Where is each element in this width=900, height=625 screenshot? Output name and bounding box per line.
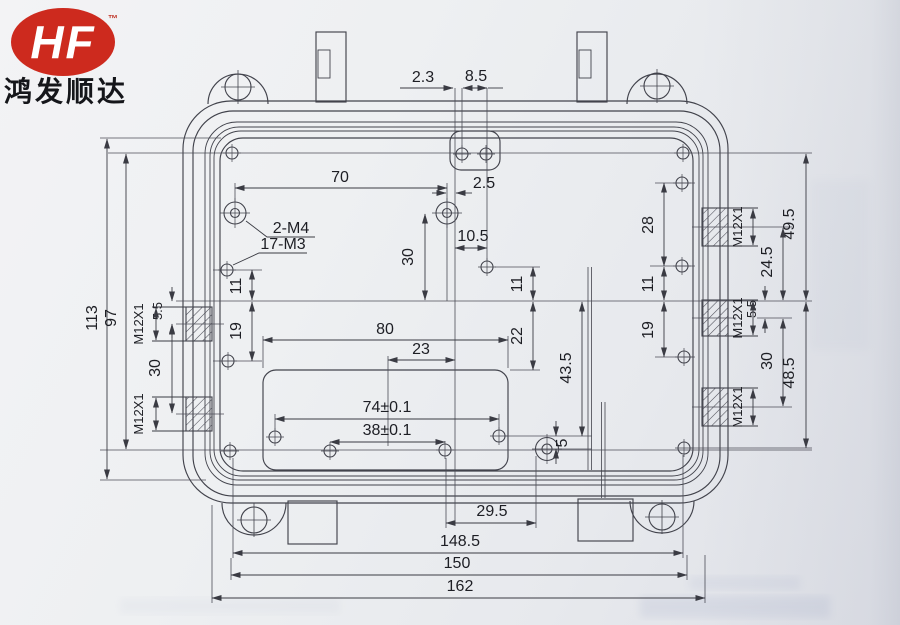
dim-2-3: 2.3 [412, 69, 434, 86]
m4-hole [220, 198, 462, 228]
dim-5-5-left: 5.5 [150, 302, 165, 320]
outer-wall-outline [183, 101, 728, 503]
logo-trademark: ™ [108, 14, 118, 25]
dim-11-center: 11 [509, 276, 526, 293]
dim-11-left: 11 [228, 278, 245, 295]
scanned-drawing-page: HF ™ 鸿发顺达 [0, 0, 900, 625]
dim-113: 113 [84, 305, 101, 331]
label-m12x1-right-middle: M12X1 [730, 297, 745, 338]
label-m12x1-left-lower: M12X1 [131, 393, 146, 434]
dim-70: 70 [331, 169, 349, 186]
dim-5-5-right: 5.5 [744, 300, 759, 318]
hinge-tab-notch [318, 50, 330, 78]
label-2-m4: 2-M4 [273, 220, 310, 237]
dim-19-left: 19 [228, 322, 245, 340]
latch-tab-bottom-right [578, 499, 633, 541]
dim-5: 5 [554, 438, 571, 447]
seal-groove-inner [214, 131, 699, 476]
dim-19-right: 19 [640, 321, 657, 339]
brand-logo: HF ™ 鸿发顺达 [4, 8, 128, 107]
enclosure-drawing: HF ™ 鸿发顺达 [0, 0, 900, 625]
drill-holes [218, 69, 693, 537]
dim-30-center: 30 [400, 248, 417, 266]
dim-24-5: 24.5 [759, 246, 776, 277]
dim-29-5: 29.5 [476, 503, 507, 520]
dim-2-5: 2.5 [473, 175, 495, 192]
scan-artifacts [120, 0, 900, 625]
dim-49-5: 49.5 [781, 208, 798, 239]
dim-8-5: 8.5 [465, 68, 487, 85]
dim-150: 150 [444, 555, 471, 572]
dim-43-5: 43.5 [558, 352, 575, 383]
latch-tab-bottom-left [288, 501, 337, 544]
dim-162: 162 [447, 578, 474, 595]
dim-74: 74±0.1 [363, 399, 412, 416]
label-m12x1-right-lower: M12X1 [730, 386, 745, 427]
logo-company-name: 鸿发顺达 [4, 75, 128, 107]
hinge-tab-notch [579, 50, 591, 78]
dim-30-right: 30 [759, 352, 776, 370]
dim-11-right: 11 [640, 276, 657, 293]
cover-screw-boss [532, 434, 562, 464]
dim-10-5: 10.5 [457, 228, 488, 245]
gland-centerlines [176, 227, 736, 414]
label-17-m3: 17-M3 [260, 236, 305, 253]
label-m12x1-left-upper: M12X1 [131, 303, 146, 344]
dim-30-left: 30 [147, 359, 164, 377]
dim-23: 23 [412, 341, 430, 358]
seal-groove-mid [210, 127, 703, 480]
logo-hf-text: HF [30, 16, 95, 68]
hinge-tab-top-right [577, 32, 607, 102]
terminal-platform [263, 370, 508, 470]
dim-38: 38±0.1 [363, 422, 412, 439]
dim-97: 97 [103, 309, 120, 327]
hinge-tab-top-left [316, 32, 346, 102]
dim-48-5: 48.5 [781, 357, 798, 388]
label-m12x1-right-upper: M12X1 [730, 206, 745, 247]
dim-28: 28 [640, 216, 657, 234]
m3-hole [218, 144, 693, 460]
dim-148-5: 148.5 [440, 533, 480, 550]
dim-22: 22 [509, 327, 526, 345]
dim-80: 80 [376, 321, 394, 338]
seal-groove-outer [205, 122, 708, 485]
